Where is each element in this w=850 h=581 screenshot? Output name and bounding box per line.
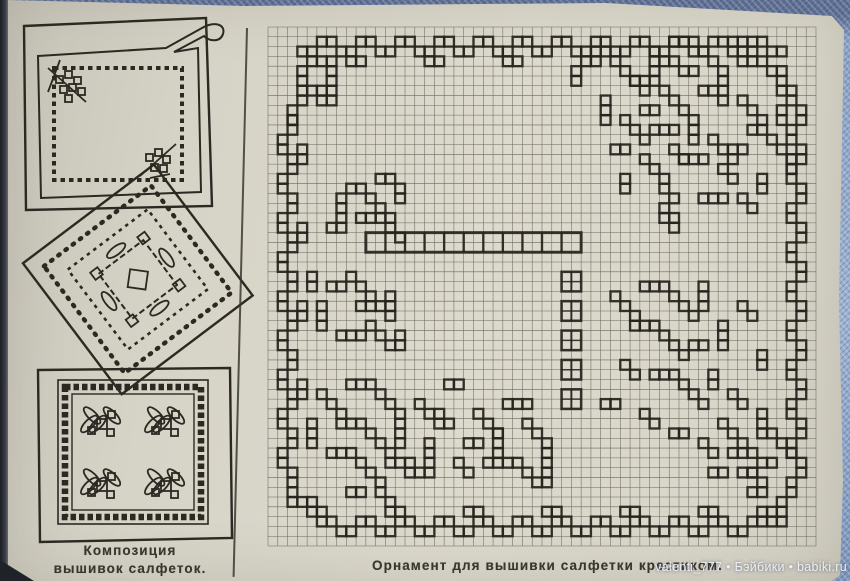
left-caption: Композиция вышивок салфеток. — [32, 542, 228, 577]
scalloped-border-icon — [44, 186, 232, 374]
cross-stitch-chart — [268, 27, 816, 546]
napkin-outline — [58, 380, 208, 524]
floral-wreath-icon — [82, 223, 195, 336]
napkin-sketch-four-leaf-motifs — [30, 360, 242, 548]
left-caption-line2: вышивок салфеток. — [32, 560, 228, 578]
watermark: valenti_777 • Бэйбики • babiki.ru — [655, 560, 847, 574]
photo-of-book-page: Композиция вышивок салфеток. Орнамент дл… — [0, 0, 850, 581]
page-spine-shadow — [0, 0, 8, 581]
left-caption-line1: Композиция — [32, 542, 228, 560]
leaf-motif-grid-icon — [79, 405, 187, 498]
